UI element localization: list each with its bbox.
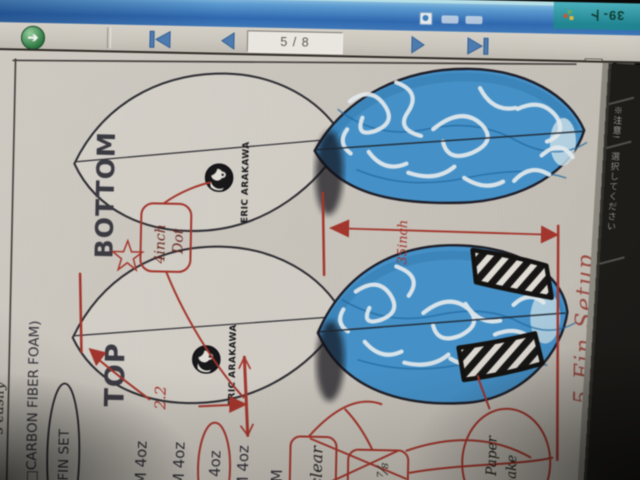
clear-bubble-text: clear xyxy=(307,445,327,480)
form-wo-finset-label: ☒W/O FIN SET xyxy=(55,428,73,480)
brand-text: ERIC ARAKAWA xyxy=(227,324,239,406)
form-cloth-label: TTOM 4oz xyxy=(233,445,253,480)
brand-logo xyxy=(205,164,233,192)
board-artwork-bottom xyxy=(313,66,588,221)
panel-tab-2[interactable]: 選択してください xyxy=(605,151,623,232)
app-window: 39-ト ➔ 5 / 8 xyxy=(0,0,640,480)
dot-annotation-line1: 4inch xyxy=(152,224,169,265)
dot-annotation-line2: Dot xyxy=(170,228,187,255)
brand-text: ERIC ARAKAWA xyxy=(240,141,252,223)
panel-divider xyxy=(609,97,635,105)
margin-handwriting: s easily xyxy=(0,381,8,435)
form-cloth-label: M 4oz xyxy=(205,450,224,480)
surfboard-order-drawing: ERIC ARAKAWA ERIC ARAKAWA □CARBON FIBER … xyxy=(0,2,640,480)
form-cloth-label: OM xyxy=(268,469,287,480)
label-bottom-view: BOTTOM xyxy=(89,131,121,259)
panel-tab-1[interactable]: ※注意! xyxy=(610,105,625,139)
panel-divider xyxy=(599,256,625,264)
fraction-bubble-text: t ⅞ xyxy=(374,462,393,480)
form-cloth-label: TTOM 4oz xyxy=(169,441,189,480)
form-carbon-label: □CARBON FIBER FOAM) xyxy=(24,320,43,480)
form-cloth-label: M 4oz xyxy=(132,441,151,480)
tail-measure-text: 2.2 xyxy=(151,385,170,410)
label-top-view: TOP xyxy=(99,342,131,407)
width-measure-text: 35inch xyxy=(395,220,411,265)
real-paper-text: Real Paper xyxy=(483,434,501,480)
panel-divider xyxy=(606,141,632,149)
screen-photo: 39-ト ➔ 5 / 8 xyxy=(0,0,640,480)
snake-text: Snake xyxy=(503,455,520,480)
board-artwork-top xyxy=(315,242,577,406)
